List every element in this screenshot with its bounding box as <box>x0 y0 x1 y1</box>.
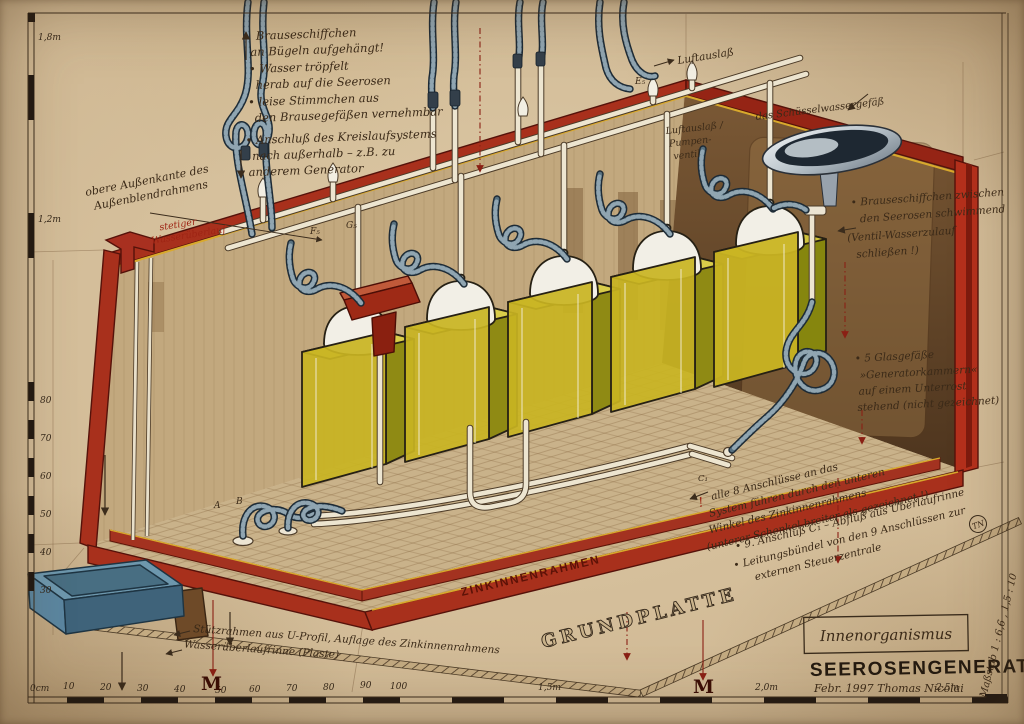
left-ruler-label: 80 <box>40 396 52 406</box>
annotation-line: anderem Generator <box>248 161 365 179</box>
bottom-ruler-label: 1,5m <box>538 683 561 693</box>
inner-organism-label: Innenorganismus <box>819 625 953 645</box>
annotation-support-frame: Stützrahmen aus U-Profil, Auflage des Zi… <box>184 622 501 672</box>
technical-drawing: 1,8m 1,2m 80 70 60 50 40 30 0cm 10 20 30… <box>0 0 1024 724</box>
hose-coupling <box>513 54 522 68</box>
annotation-line: an Bügeln aufgehängt! <box>250 40 384 59</box>
annotation-line: Brauseschiffchen <box>255 25 357 43</box>
bottom-ruler-label: 0cm <box>30 684 49 694</box>
label-b: B <box>235 497 243 507</box>
left-ruler-label: 40 <box>39 548 52 558</box>
label-g5: G₅ <box>346 221 357 231</box>
bottom-ruler-label: 80 <box>323 683 335 693</box>
annotation-outer-edge: obere Außenkante des Außenblendrahmens <box>84 162 213 213</box>
annotation-line: herab auf die Seerosen <box>255 73 391 92</box>
bottom-ruler-label: 20 <box>99 683 112 693</box>
left-ruler-label: 1,8m <box>38 33 61 43</box>
left-ruler-label: 50 <box>40 510 52 520</box>
annotation-top-left: Brauseschiffchen an Bügeln aufgehängt! •… <box>242 22 447 179</box>
label-c1: C₁ <box>698 474 708 484</box>
bottom-ruler-label: 90 <box>360 681 372 691</box>
label-f5: F₅ <box>309 227 320 237</box>
bottom-ruler-label: 30 <box>137 684 149 694</box>
bottom-ruler-ticks <box>67 694 1008 703</box>
label-base-plate: GRUNDPLATTE <box>539 584 739 653</box>
scale-note: Maßstab 1 : 6,6̄ , 1,5 : 10 <box>978 572 1020 700</box>
bottom-ruler-label: 60 <box>249 685 261 695</box>
monogram-stamp: TN <box>967 513 989 535</box>
hose-coupling <box>536 52 545 66</box>
annotation-line: • Anschluß des Kreislaufsystems <box>245 127 437 148</box>
label-a: A <box>213 501 221 511</box>
bottom-ruler-label: 40 <box>173 685 186 695</box>
hose-coupling <box>450 90 460 106</box>
bottom-ruler-label: 10 <box>63 682 75 692</box>
bottom-ruler-label: 100 <box>390 682 407 692</box>
bottom-ruler-label: 2,0m <box>754 683 778 693</box>
left-ruler-label: 70 <box>40 434 52 444</box>
annotation-air-outlet: Luftauslaß <box>676 46 735 67</box>
left-ruler-label: 1,2m <box>38 215 61 225</box>
left-ruler-label: 30 <box>40 586 52 596</box>
annotation-line: nach außerhalb – z.B. zu <box>252 144 396 163</box>
label-e5: E₅ <box>634 77 646 87</box>
meter-marker: M <box>201 673 222 695</box>
left-ruler-label: 60 <box>40 472 52 482</box>
aged-paper-background: 1,8m 1,2m 80 70 60 50 40 30 0cm 10 20 30… <box>0 0 1024 724</box>
annotation-line: • Wasser tröpfelt <box>249 59 349 76</box>
artwork-credit: Febr. 1997 Thomas Nicolai <box>813 682 964 695</box>
meter-marker: M <box>693 676 714 698</box>
left-ruler-ticks <box>29 75 35 591</box>
hose-coupling <box>241 146 250 160</box>
bottom-ruler-label: 70 <box>286 684 298 694</box>
